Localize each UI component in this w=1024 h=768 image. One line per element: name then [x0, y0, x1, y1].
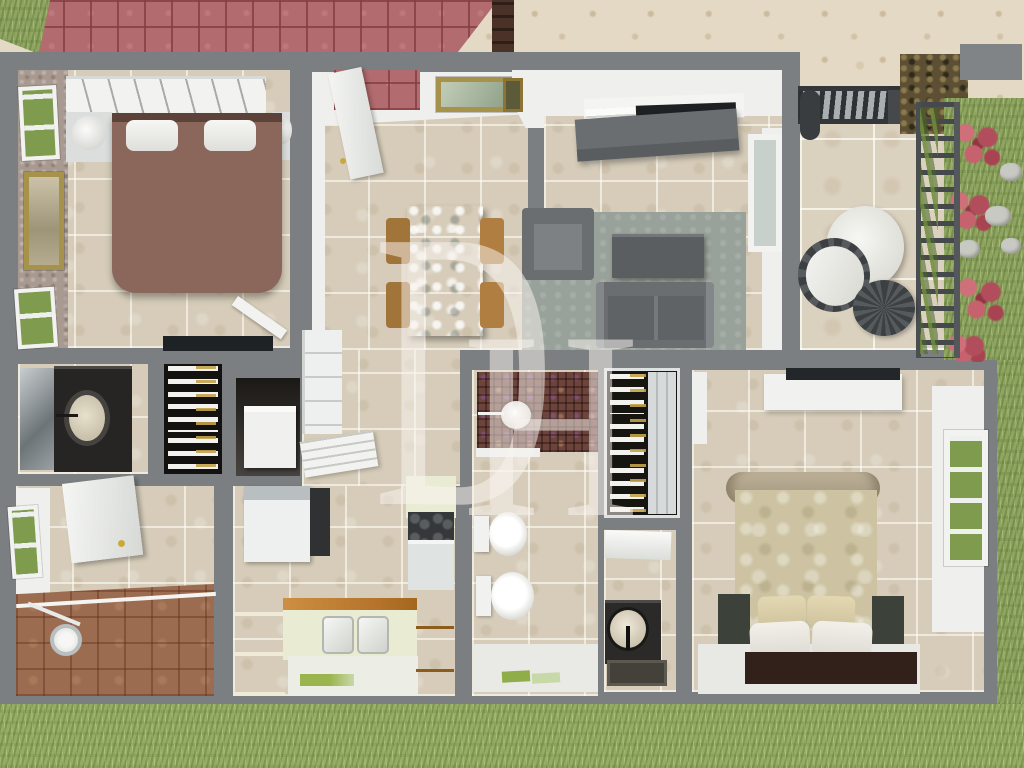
alcove-cabinet [244, 406, 296, 468]
living-armchair-cushion [534, 224, 582, 270]
entry-door-knob [340, 158, 346, 164]
dining-table [407, 206, 483, 336]
mbath-mat-pale [532, 672, 560, 683]
dining-chair-3 [480, 218, 504, 264]
trellis-vine [920, 108, 938, 354]
wc-shelf [605, 530, 672, 560]
pergola-block [960, 44, 1022, 80]
dining-chair-2 [386, 282, 410, 328]
kitchen-stove [408, 512, 454, 540]
dining-chair-4 [480, 282, 504, 328]
utility-door-leaf [62, 475, 143, 563]
toilet1-bowl [489, 512, 527, 556]
mbath-faucet [478, 412, 504, 415]
kitchen-sink-left [322, 616, 354, 654]
mbed-left-wall-trim [692, 372, 707, 444]
wc-mat [607, 660, 667, 686]
living-small-frame [503, 78, 523, 112]
bedroom1-pillow-right [204, 120, 256, 151]
garden-stone-1 [1000, 163, 1022, 181]
living-coffee-table [612, 234, 704, 278]
toilet1-tank [474, 516, 489, 552]
kitchen-fridge [244, 486, 310, 562]
bedroom1-window-bottom [14, 287, 58, 350]
mbed-window [944, 430, 988, 566]
mbath-floor-panel [474, 644, 598, 692]
kitchen-cutting-board [300, 674, 354, 686]
utility-door-knob [118, 540, 125, 547]
hall-cabinet [302, 330, 342, 434]
bedroom1-lamp-left [72, 116, 106, 150]
shower-head [50, 624, 82, 656]
roof-top-left [36, 0, 498, 54]
mbed-planter-right [872, 596, 904, 646]
kitchen-sink-right [357, 616, 389, 654]
garden-stone-3 [1001, 238, 1021, 254]
closet2-gold-items [630, 374, 646, 512]
dining-chair-1 [386, 218, 410, 264]
toilet2-tank [476, 576, 491, 616]
mbath-sink [501, 401, 531, 429]
bedroom1-wall-art [24, 172, 64, 270]
living-loveseat-cushions [608, 296, 704, 340]
bathroom1-faucet [56, 414, 78, 417]
kitchen-oven-tall [310, 488, 330, 556]
utility-window [8, 505, 43, 579]
patio-stool [853, 280, 915, 336]
patio-side-chair [800, 90, 820, 140]
bedroom1-tv-panel [163, 336, 273, 351]
closet2-door [648, 372, 676, 514]
kitchen-dishwasher [408, 540, 454, 590]
mbath-mat-green [502, 670, 531, 682]
bedroom1-window-top [18, 85, 60, 161]
roof-edge-strip [492, 0, 514, 54]
mbed-rug [745, 652, 917, 684]
patio-door-frame [748, 134, 782, 252]
mbed-planter-left [718, 594, 750, 648]
bedroom1-pillow-left [126, 120, 178, 151]
closet1-gold-items [196, 366, 216, 472]
toilet2-bowl [491, 572, 534, 620]
wc-faucet [626, 626, 630, 650]
garden-stone-4 [958, 240, 980, 258]
kitchen-cabinet-left [233, 576, 285, 696]
garden-stone-2 [985, 206, 1011, 226]
mbath-ledge [476, 448, 540, 457]
mbed-tv [786, 368, 900, 380]
bathroom1-mirror [20, 368, 54, 470]
bathroom1-sink [64, 390, 110, 446]
lawn-bottom [0, 704, 1024, 768]
dining-left-wall [312, 118, 325, 350]
kitchen-cabinet-right [416, 586, 454, 696]
floorplan-render: D H [0, 0, 1024, 768]
